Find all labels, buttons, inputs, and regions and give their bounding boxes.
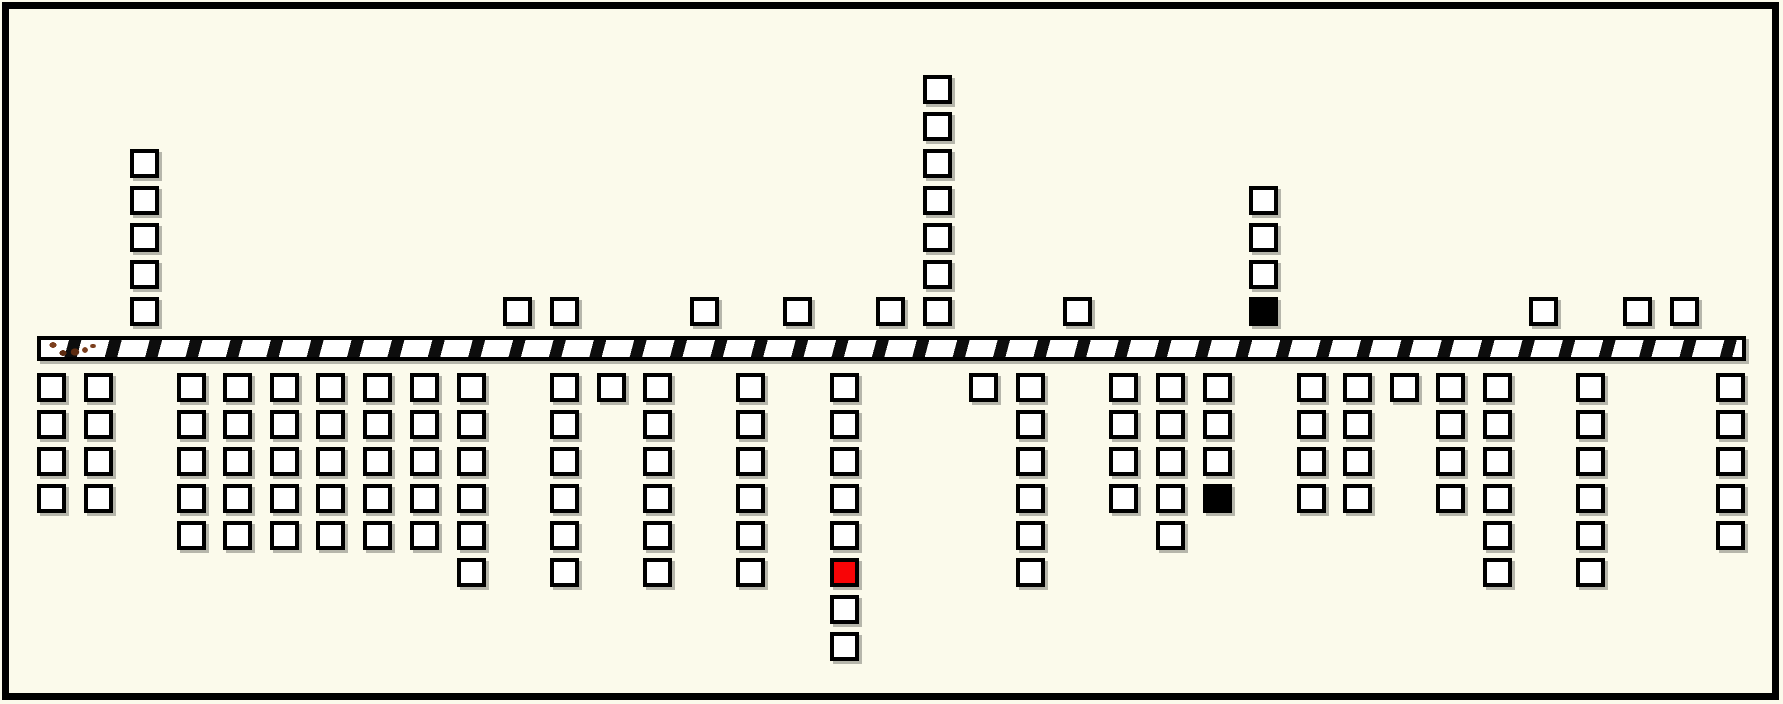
square-white — [969, 373, 998, 402]
square-white — [550, 447, 579, 476]
square-white — [1156, 521, 1185, 550]
square-black — [1203, 484, 1232, 513]
square-white — [410, 447, 439, 476]
square-white — [503, 297, 532, 326]
square-white — [923, 297, 952, 326]
board — [0, 0, 1783, 704]
square-white — [1297, 484, 1326, 513]
square-white — [1343, 447, 1372, 476]
square-white — [1576, 558, 1605, 587]
square-white — [130, 297, 159, 326]
square-white — [1576, 447, 1605, 476]
square-white — [830, 521, 859, 550]
square-white — [783, 297, 812, 326]
square-white — [643, 447, 672, 476]
square-white — [457, 373, 486, 402]
square-white — [1576, 521, 1605, 550]
square-white — [643, 410, 672, 439]
square-white — [1576, 373, 1605, 402]
square-white — [363, 484, 392, 513]
square-white — [410, 484, 439, 513]
square-white — [177, 373, 206, 402]
square-white — [1716, 410, 1745, 439]
square-white — [1109, 410, 1138, 439]
square-white — [736, 558, 765, 587]
square-white — [177, 410, 206, 439]
square-white — [84, 410, 113, 439]
square-white — [410, 521, 439, 550]
square-white — [1576, 484, 1605, 513]
square-white — [550, 558, 579, 587]
square-white — [597, 373, 626, 402]
square-white — [457, 484, 486, 513]
square-white — [736, 521, 765, 550]
square-white — [1716, 447, 1745, 476]
square-white — [830, 410, 859, 439]
square-white — [1483, 521, 1512, 550]
square-white — [457, 447, 486, 476]
square-white — [1109, 484, 1138, 513]
square-white — [270, 484, 299, 513]
square-white — [177, 484, 206, 513]
square-white — [363, 410, 392, 439]
square-white — [830, 373, 859, 402]
square-white — [177, 447, 206, 476]
square-white — [1297, 410, 1326, 439]
square-white — [830, 447, 859, 476]
square-white — [1203, 410, 1232, 439]
square-white — [830, 595, 859, 624]
square-white — [410, 410, 439, 439]
square-white — [1716, 484, 1745, 513]
square-white — [130, 149, 159, 178]
square-white — [457, 410, 486, 439]
square-white — [690, 297, 719, 326]
square-white — [84, 373, 113, 402]
square-white — [1156, 373, 1185, 402]
square-white — [1623, 297, 1652, 326]
square-white — [363, 521, 392, 550]
square-white — [736, 373, 765, 402]
square-white — [84, 447, 113, 476]
square-white — [1016, 521, 1045, 550]
square-white — [1436, 410, 1465, 439]
square-white — [550, 297, 579, 326]
square-white — [363, 373, 392, 402]
square-white — [1297, 447, 1326, 476]
square-white — [130, 223, 159, 252]
square-white — [1436, 447, 1465, 476]
square-white — [37, 410, 66, 439]
square-white — [1483, 410, 1512, 439]
square-white — [37, 447, 66, 476]
square-white — [363, 447, 392, 476]
square-white — [923, 186, 952, 215]
square-white — [223, 410, 252, 439]
square-white — [1016, 373, 1045, 402]
square-white — [1483, 558, 1512, 587]
square-white — [1156, 410, 1185, 439]
square-white — [736, 447, 765, 476]
square-white — [223, 373, 252, 402]
square-white — [270, 373, 299, 402]
square-white — [1203, 447, 1232, 476]
square-white — [1529, 297, 1558, 326]
square-white — [923, 75, 952, 104]
square-white — [550, 373, 579, 402]
square-white — [316, 521, 345, 550]
square-white — [1063, 297, 1092, 326]
square-white — [923, 149, 952, 178]
square-white — [223, 447, 252, 476]
square-white — [1297, 373, 1326, 402]
square-white — [1249, 260, 1278, 289]
square-white — [830, 484, 859, 513]
square-white — [1109, 373, 1138, 402]
square-white — [1156, 484, 1185, 513]
square-white — [270, 447, 299, 476]
square-white — [1436, 484, 1465, 513]
square-white — [1249, 186, 1278, 215]
square-white — [923, 260, 952, 289]
square-white — [736, 410, 765, 439]
square-white — [1016, 447, 1045, 476]
square-white — [550, 521, 579, 550]
square-black — [1249, 297, 1278, 326]
square-white — [550, 410, 579, 439]
square-white — [84, 484, 113, 513]
square-white — [1249, 223, 1278, 252]
square-white — [223, 521, 252, 550]
square-white — [223, 484, 252, 513]
road-bar — [37, 336, 1746, 361]
square-white — [923, 223, 952, 252]
square-white — [1156, 447, 1185, 476]
square-white — [643, 521, 672, 550]
square-white — [1390, 373, 1419, 402]
square-white — [1343, 373, 1372, 402]
square-white — [1716, 373, 1745, 402]
square-white — [1576, 410, 1605, 439]
square-white — [457, 558, 486, 587]
square-white — [316, 484, 345, 513]
square-white — [1343, 484, 1372, 513]
square-white — [643, 373, 672, 402]
square-white — [1483, 373, 1512, 402]
square-white — [270, 521, 299, 550]
square-white — [923, 112, 952, 141]
square-white — [876, 297, 905, 326]
square-white — [130, 186, 159, 215]
square-red — [830, 558, 859, 587]
square-white — [37, 484, 66, 513]
square-white — [316, 373, 345, 402]
square-white — [270, 410, 299, 439]
square-white — [1436, 373, 1465, 402]
square-white — [736, 484, 765, 513]
square-white — [1670, 297, 1699, 326]
square-white — [1483, 447, 1512, 476]
square-white — [550, 484, 579, 513]
square-white — [1016, 558, 1045, 587]
square-white — [316, 410, 345, 439]
square-white — [1109, 447, 1138, 476]
square-white — [457, 521, 486, 550]
square-white — [1016, 484, 1045, 513]
square-white — [316, 447, 345, 476]
square-white — [1483, 484, 1512, 513]
square-white — [37, 373, 66, 402]
square-white — [1203, 373, 1232, 402]
square-white — [410, 373, 439, 402]
square-white — [643, 558, 672, 587]
square-white — [1716, 521, 1745, 550]
square-white — [130, 260, 159, 289]
square-white — [1343, 410, 1372, 439]
square-white — [177, 521, 206, 550]
square-white — [1016, 410, 1045, 439]
square-white — [643, 484, 672, 513]
square-white — [830, 632, 859, 661]
